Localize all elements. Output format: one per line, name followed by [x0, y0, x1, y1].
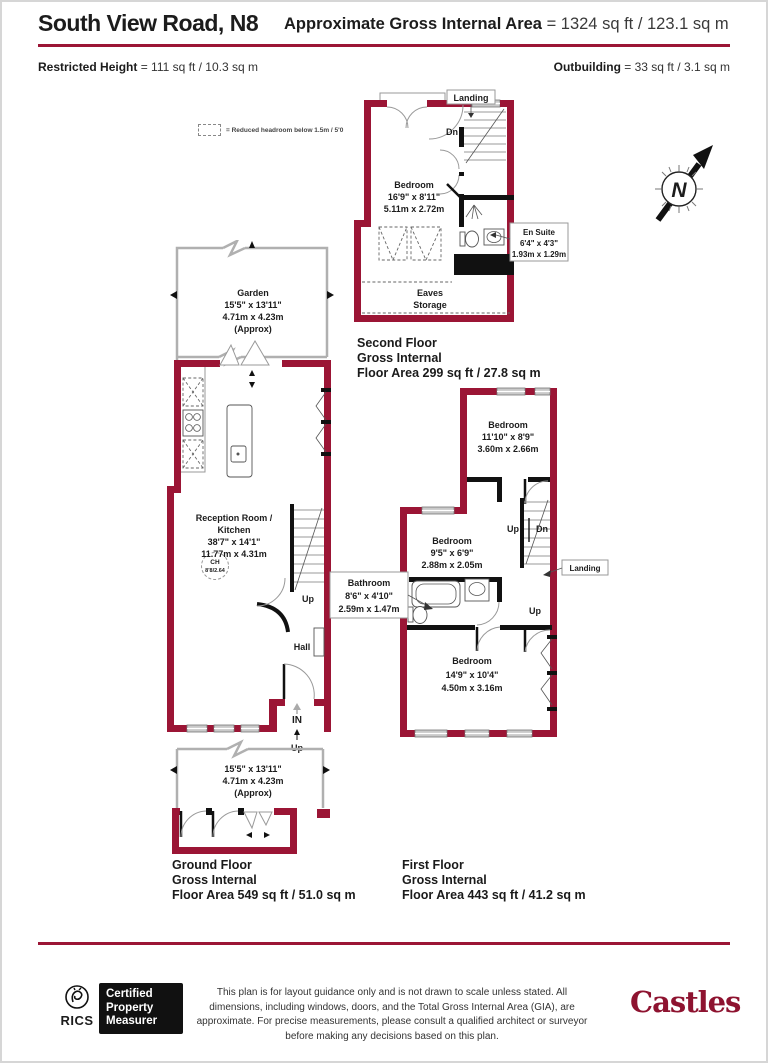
- toilet-icon: [460, 232, 465, 246]
- hob-icon: [183, 410, 203, 436]
- ground-floor-area-label: Ground Floor Gross Internal Floor Area 5…: [172, 858, 356, 903]
- rics-lion-icon: [62, 984, 92, 1012]
- hall-partition: [257, 578, 288, 632]
- castles-logo: Castles: [630, 985, 740, 1019]
- reduced-headroom-legend: = Reduced headroom below 1.5m / 5'0: [198, 124, 343, 136]
- svg-text:Eaves: Eaves: [417, 288, 443, 298]
- svg-text:14'9" x 10'4": 14'9" x 10'4": [446, 670, 499, 680]
- front-garden-label: 15'5" x 13'11" 4.71m x 4.23m (Approx): [222, 764, 283, 798]
- svg-text:8'6" x 4'10": 8'6" x 4'10": [345, 591, 393, 601]
- gross-internal-area: Approximate Gross Internal Area = 1324 s…: [284, 15, 729, 34]
- dn-label: Dn: [446, 127, 458, 137]
- french-door-right: [406, 107, 427, 128]
- svg-text:15'5" x 13'11": 15'5" x 13'11": [224, 764, 281, 774]
- kitchen-fixtures: [181, 367, 252, 477]
- reduced-headroom-text: = Reduced headroom below 1.5m / 5'0: [226, 127, 343, 134]
- svg-text:38'7" x 14'1": 38'7" x 14'1": [208, 537, 261, 547]
- svg-text:4.71m x 4.23m: 4.71m x 4.23m: [222, 312, 283, 322]
- svg-text:16'9" x 8'11": 16'9" x 8'11": [388, 192, 440, 202]
- svg-text:Storage: Storage: [413, 300, 447, 310]
- outbuilding: Outbuilding = 33 sq ft / 3.1 sq m: [554, 60, 730, 74]
- svg-text:Garden: Garden: [237, 288, 269, 298]
- north-arrow-icon: N: [655, 145, 713, 220]
- bedroom-front-label: Bedroom 14'9" x 10'4" 4.50m x 3.16m: [441, 656, 502, 693]
- wardrobe: [411, 227, 441, 260]
- svg-text:CH: CH: [210, 559, 220, 566]
- disclaimer-text: This plan is for layout guidance only an…: [192, 986, 592, 1044]
- dn-label: Dn: [536, 524, 548, 534]
- reduced-headroom-swatch-icon: [198, 124, 221, 136]
- bath-icon: [412, 581, 460, 607]
- toilet-icon: [408, 607, 413, 622]
- svg-text:5.11m x 2.72m: 5.11m x 2.72m: [384, 204, 445, 214]
- svg-text:2.59m x 1.47m: 2.59m x 1.47m: [338, 604, 399, 614]
- header-rule: [38, 44, 730, 47]
- svg-text:11'10" x 8'9": 11'10" x 8'9": [482, 432, 534, 442]
- up-label: Up: [507, 524, 519, 534]
- in-label: IN: [292, 715, 302, 726]
- svg-text:Reception Room /: Reception Room /: [196, 513, 273, 523]
- footer-rule: [38, 942, 730, 945]
- svg-text:8'8/2.64: 8'8/2.64: [205, 568, 226, 574]
- up2-label: Up: [529, 606, 541, 616]
- front-garden-boundary: [170, 742, 330, 808]
- second-floor-area-label: Second Floor Gross Internal Floor Area 2…: [357, 336, 541, 381]
- svg-text:9'5" x 6'9": 9'5" x 6'9": [431, 548, 474, 558]
- page-title: South View Road, N8: [38, 10, 258, 37]
- svg-text:(Approx): (Approx): [234, 324, 272, 334]
- svg-text:15'5" x 13'11": 15'5" x 13'11": [224, 300, 281, 310]
- landing-label: Landing: [569, 564, 600, 573]
- svg-text:4.71m x 4.23m: 4.71m x 4.23m: [222, 776, 283, 786]
- garden-label: Garden 15'5" x 13'11" 4.71m x 4.23m (App…: [222, 288, 283, 334]
- restricted-height-value: = 111 sq ft / 10.3 sq m: [141, 60, 258, 74]
- outbuilding-value: = 33 sq ft / 3.1 sq m: [624, 60, 730, 74]
- first-floor-area-label: First Floor Gross Internal Floor Area 44…: [402, 858, 586, 903]
- first-floor-plan: Up Dn Up Bedroom 11'10" x 8'9" 3.60m x 2…: [322, 380, 612, 748]
- svg-text:Bedroom: Bedroom: [452, 656, 492, 666]
- restricted-height: Restricted Height = 111 sq ft / 10.3 sq …: [38, 60, 258, 74]
- svg-text:1.93m x 1.29m: 1.93m x 1.29m: [512, 250, 566, 259]
- certified-property-measurer-badge: Certified Property Measurer: [99, 983, 183, 1034]
- svg-text:4.50m x 3.16m: 4.50m x 3.16m: [441, 683, 502, 693]
- compass-north-label: N: [671, 179, 687, 202]
- gia-label: Approximate Gross Internal Area: [284, 15, 542, 33]
- shower-icon: [466, 205, 482, 219]
- bedroom-middle-label: Bedroom 9'5" x 6'9" 2.88m x 2.05m: [421, 536, 482, 570]
- rics-logo: RICS: [57, 984, 97, 1028]
- second-floor-plan: Landing Dn Bedroom 16'9" x 8'11" 5.11m x…: [342, 87, 587, 337]
- outbuilding-label: Outbuilding: [554, 60, 621, 74]
- bedroom-rear-label: Bedroom 11'10" x 8'9" 3.60m x 2.66m: [477, 420, 538, 454]
- hall-label: Hall: [294, 642, 311, 652]
- ensuite-black-band: [454, 254, 514, 275]
- svg-text:3.60m x 2.66m: 3.60m x 2.66m: [477, 444, 538, 454]
- garden-bifold-door: [220, 341, 269, 388]
- up-label: Up: [302, 594, 314, 604]
- french-door-left: [387, 107, 408, 128]
- wardrobe: [379, 227, 407, 260]
- ground-floor-stairs: [290, 504, 324, 592]
- restricted-height-label: Restricted Height: [38, 60, 137, 74]
- svg-text:Bedroom: Bedroom: [488, 420, 528, 430]
- rics-wordmark: RICS: [57, 1013, 97, 1028]
- svg-text:En Suite: En Suite: [523, 228, 556, 237]
- gia-value: = 1324 sq ft / 123.1 sq m: [547, 15, 729, 33]
- svg-text:(Approx): (Approx): [234, 788, 272, 798]
- dormer-outline: [380, 93, 445, 100]
- front-door: [284, 664, 314, 714]
- svg-text:Bedroom: Bedroom: [394, 180, 434, 190]
- island: [227, 405, 252, 477]
- landing-label: Landing: [454, 93, 489, 103]
- svg-text:Kitchen: Kitchen: [217, 525, 250, 535]
- outbuilding: [172, 808, 330, 854]
- second-floor-stairs: [464, 109, 506, 163]
- svg-text:2.88m x 2.05m: 2.88m x 2.05m: [421, 560, 482, 570]
- svg-text:Bathroom: Bathroom: [348, 578, 391, 588]
- svg-text:11.77m x 4.31m: 11.77m x 4.31m: [201, 549, 267, 559]
- floorplan-page: South View Road, N8 Approximate Gross In…: [0, 0, 768, 1063]
- reception-label: Reception Room / Kitchen 38'7" x 14'1" 1…: [196, 513, 273, 559]
- bedroom-label: Bedroom 16'9" x 8'11" 5.11m x 2.72m: [384, 180, 445, 214]
- svg-text:6'4" x 4'3": 6'4" x 4'3": [520, 239, 558, 248]
- compass-icon: N: [627, 127, 737, 237]
- svg-text:Bedroom: Bedroom: [432, 536, 472, 546]
- ground-floor-plan: Garden 15'5" x 13'11" 4.71m x 4.23m (App…: [157, 240, 342, 856]
- eaves-storage-label: Eaves Storage: [413, 288, 447, 310]
